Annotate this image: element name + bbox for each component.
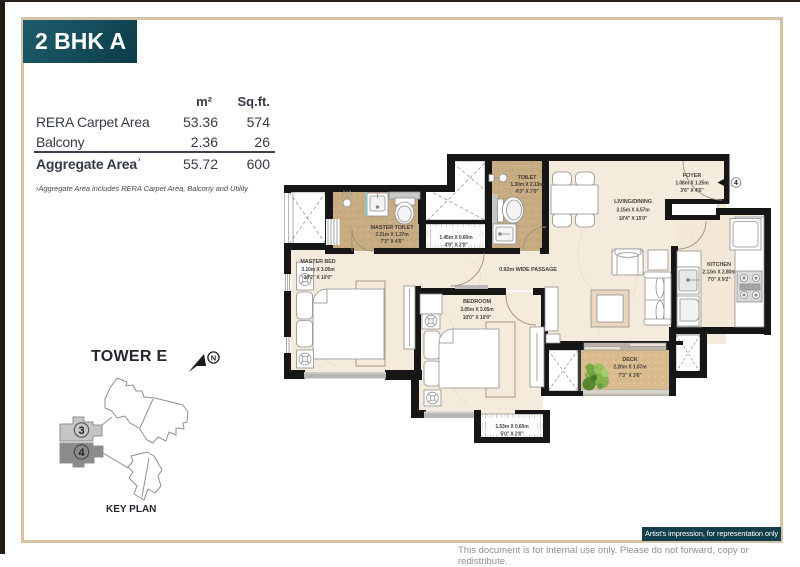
svg-text:N: N: [211, 354, 216, 363]
svg-text:3: 3: [78, 425, 84, 437]
svg-text:4: 4: [78, 447, 85, 459]
